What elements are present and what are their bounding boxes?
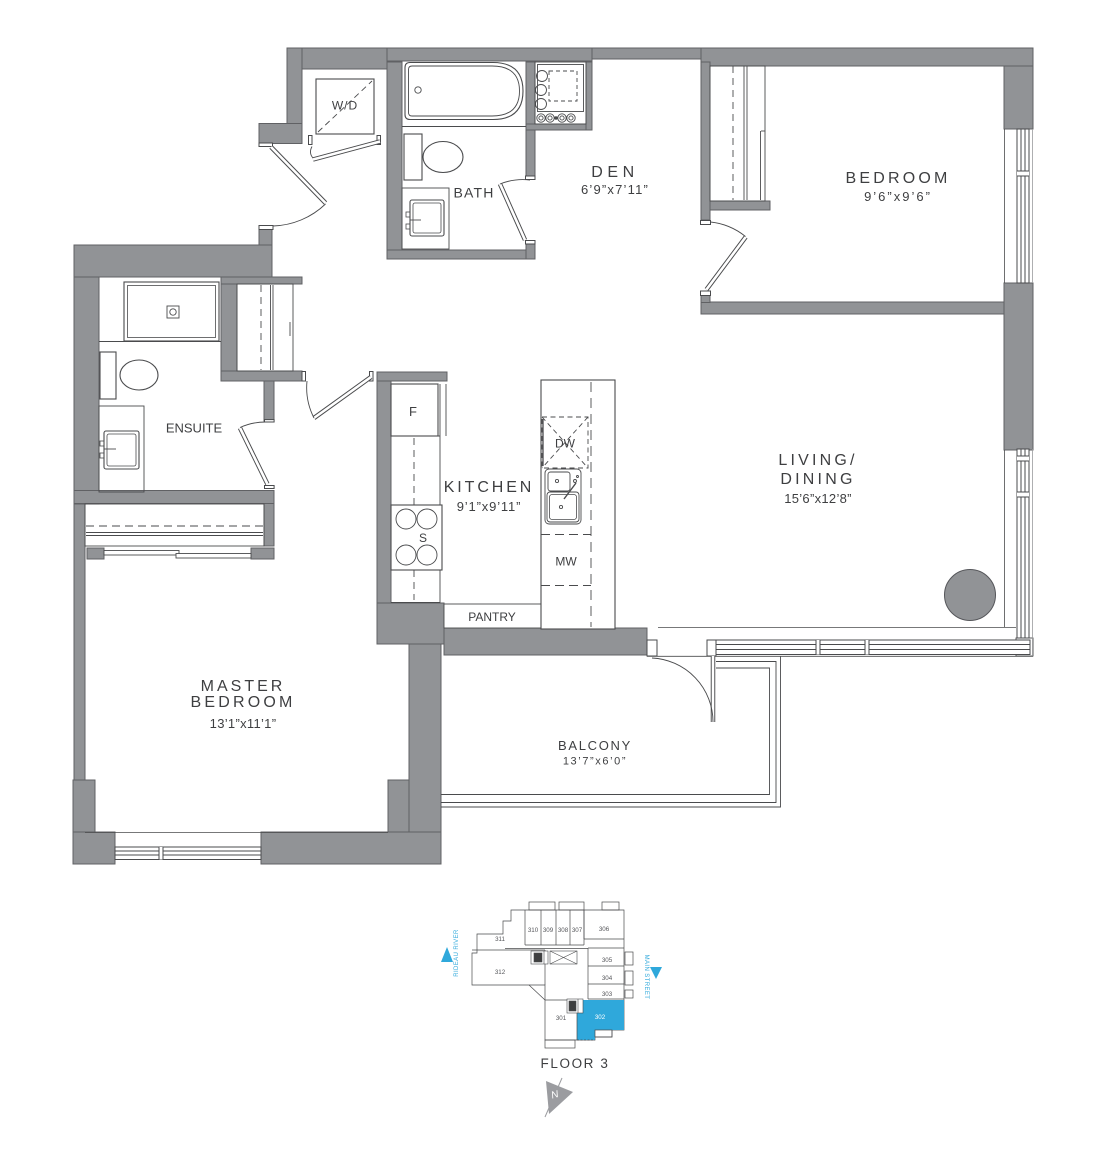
svg-text:DW: DW (555, 437, 576, 451)
svg-text:303: 303 (602, 991, 613, 998)
svg-text:301: 301 (556, 1015, 567, 1022)
svg-text:PANTRY: PANTRY (468, 610, 516, 624)
svg-text:302: 302 (595, 1014, 606, 1021)
svg-text:MAIN STREET: MAIN STREET (643, 955, 649, 1000)
svg-text:9’1”x9’11”: 9’1”x9’11” (457, 499, 522, 514)
svg-text:305: 305 (602, 957, 613, 964)
svg-text:BEDROOM: BEDROOM (190, 694, 295, 711)
svg-text:BATH: BATH (453, 185, 494, 201)
svg-text:BALCONY: BALCONY (558, 738, 632, 753)
svg-text:309: 309 (543, 927, 554, 934)
svg-text:310: 310 (528, 927, 539, 934)
svg-text:13’1”x11’1”: 13’1”x11’1” (210, 716, 277, 731)
svg-text:13’7”x6’0”: 13’7”x6’0” (563, 756, 627, 768)
svg-text:KITCHEN: KITCHEN (444, 479, 535, 496)
svg-text:BEDROOM: BEDROOM (845, 170, 950, 187)
svg-text:308: 308 (558, 927, 569, 934)
svg-text:311: 311 (495, 936, 505, 943)
svg-text:307: 307 (572, 927, 583, 934)
svg-text:ENSUITE: ENSUITE (166, 421, 223, 436)
svg-text:306: 306 (599, 926, 610, 933)
svg-text:DEN: DEN (591, 164, 639, 181)
svg-text:15’6”x12’8”: 15’6”x12’8” (784, 491, 852, 506)
svg-text:F: F (409, 404, 417, 419)
svg-text:312: 312 (495, 969, 506, 976)
svg-text:9’6”x9’6”: 9’6”x9’6” (864, 189, 932, 204)
svg-text:W/D: W/D (332, 99, 358, 113)
svg-text:LIVING/: LIVING/ (778, 452, 857, 469)
svg-text:MW: MW (555, 555, 577, 569)
svg-text:S: S (419, 531, 427, 545)
svg-text:DINING: DINING (780, 471, 855, 488)
svg-text:6’9”x7’11”: 6’9”x7’11” (581, 182, 649, 197)
svg-text:MASTER: MASTER (201, 678, 286, 695)
svg-text:FLOOR 3: FLOOR 3 (541, 1056, 610, 1071)
svg-text:RIDEAU RIVER: RIDEAU RIVER (454, 929, 460, 977)
svg-text:304: 304 (602, 975, 613, 982)
